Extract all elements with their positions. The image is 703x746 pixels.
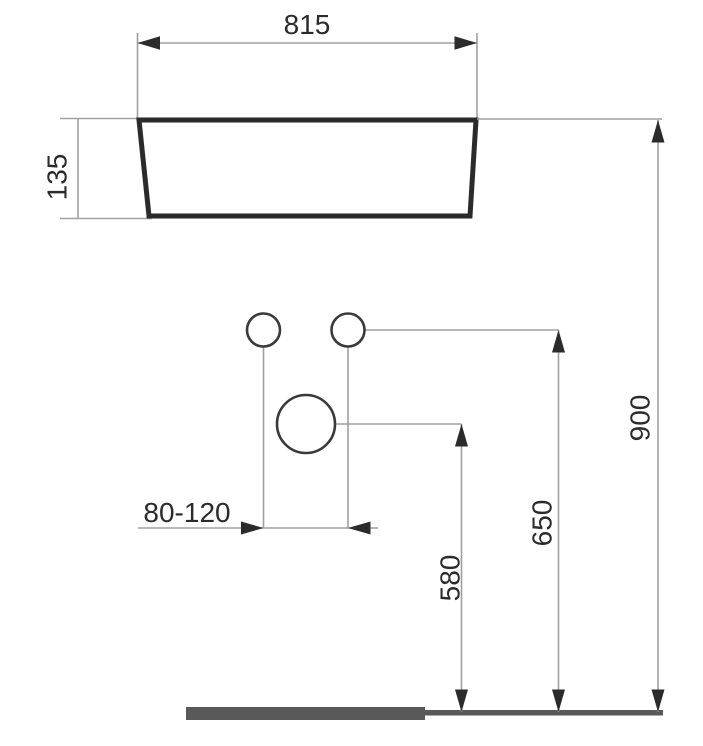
mounting-holes: [247, 314, 365, 454]
dimension-basin-height: 135: [42, 119, 153, 219]
dimension-basin-width: 815: [138, 9, 478, 120]
dim-label-650: 650: [527, 500, 558, 547]
arrowhead-right-icon: [455, 36, 478, 49]
floor-bar-thick: [186, 707, 425, 720]
faucet-hole-left: [247, 314, 280, 347]
washbasin-dimension-diagram: 815 135 80-120: [0, 0, 703, 746]
dim-label-basin-height: 135: [42, 154, 73, 201]
floor-line: [186, 707, 663, 720]
dim-label-hole-spacing: 80-120: [143, 497, 230, 528]
arrowhead-down-icon: [652, 690, 665, 713]
dim-label-basin-width: 815: [284, 9, 331, 40]
dimension-hole-spacing: 80-120: [138, 497, 378, 535]
dimension-height-650: 650: [527, 330, 566, 712]
basin-profile: [139, 120, 476, 216]
dimension-height-580: 580: [435, 424, 469, 712]
arrowhead-right-icon: [241, 522, 264, 535]
arrowhead-down-icon: [552, 690, 565, 713]
faucet-hole-right: [332, 314, 365, 347]
arrowhead-left-icon: [348, 522, 371, 535]
dimension-drawing-canvas: 815 135 80-120: [0, 0, 703, 746]
dim-label-900: 900: [625, 395, 656, 442]
arrowhead-left-icon: [138, 36, 161, 49]
arrowhead-up-icon: [652, 120, 665, 143]
dim-label-580: 580: [435, 555, 466, 602]
arrowhead-up-icon: [552, 330, 565, 353]
arrowhead-up-icon: [455, 424, 468, 447]
drain-hole: [277, 395, 335, 453]
dimension-height-900: 900: [625, 120, 665, 712]
arrowhead-down-icon: [455, 690, 468, 713]
